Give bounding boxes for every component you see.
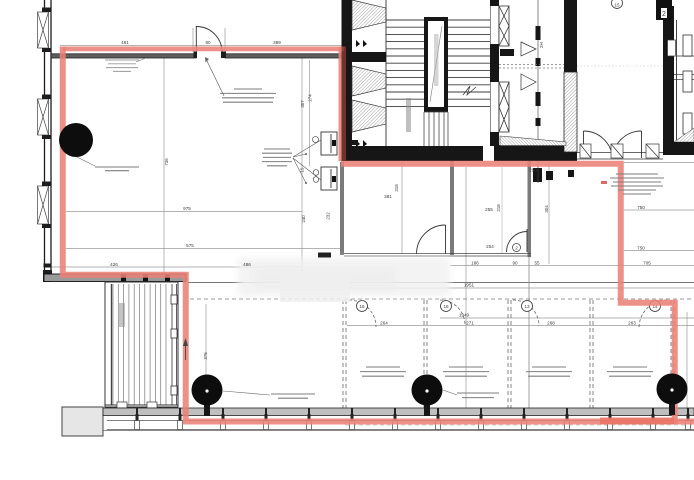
svg-text:15: 15 [614, 3, 620, 8]
svg-text:240: 240 [301, 215, 306, 223]
svg-text:15: 15 [300, 167, 305, 172]
svg-text:290: 290 [529, 168, 537, 173]
svg-text:318: 318 [394, 184, 399, 192]
svg-text:307: 307 [300, 100, 305, 108]
svg-text:2H: 2H [539, 42, 544, 48]
svg-text:1951: 1951 [464, 283, 475, 288]
svg-text:274: 274 [308, 94, 313, 102]
svg-text:13: 13 [524, 304, 530, 309]
svg-text:254: 254 [486, 244, 494, 249]
svg-text:218: 218 [496, 204, 501, 212]
svg-text:575: 575 [186, 243, 194, 248]
svg-text:381: 381 [384, 194, 392, 199]
svg-text:55: 55 [534, 261, 540, 266]
svg-text:389: 389 [273, 40, 281, 45]
svg-text:16: 16 [359, 304, 365, 309]
svg-text:1949: 1949 [459, 313, 470, 318]
svg-text:750: 750 [637, 246, 645, 251]
svg-text:90: 90 [512, 261, 518, 266]
svg-text:80: 80 [205, 40, 211, 45]
svg-text:16: 16 [443, 304, 449, 309]
svg-text:268: 268 [547, 321, 555, 326]
svg-text:975: 975 [183, 206, 191, 211]
svg-text:486: 486 [243, 262, 251, 267]
svg-text:232: 232 [326, 212, 331, 220]
svg-text:263: 263 [628, 321, 636, 326]
svg-text:255: 255 [485, 207, 493, 212]
svg-text:2: 2 [662, 11, 666, 18]
svg-text:750: 750 [637, 205, 645, 210]
svg-text:304: 304 [544, 205, 549, 213]
svg-text:426: 426 [110, 262, 118, 267]
svg-text:481: 481 [121, 40, 129, 45]
svg-text:2: 2 [515, 246, 518, 251]
svg-text:186: 186 [471, 261, 479, 266]
svg-text:375: 375 [203, 352, 208, 360]
svg-text:705: 705 [643, 261, 651, 266]
svg-text:264: 264 [380, 321, 388, 326]
svg-text:736: 736 [164, 158, 169, 166]
svg-text:271: 271 [466, 321, 474, 326]
